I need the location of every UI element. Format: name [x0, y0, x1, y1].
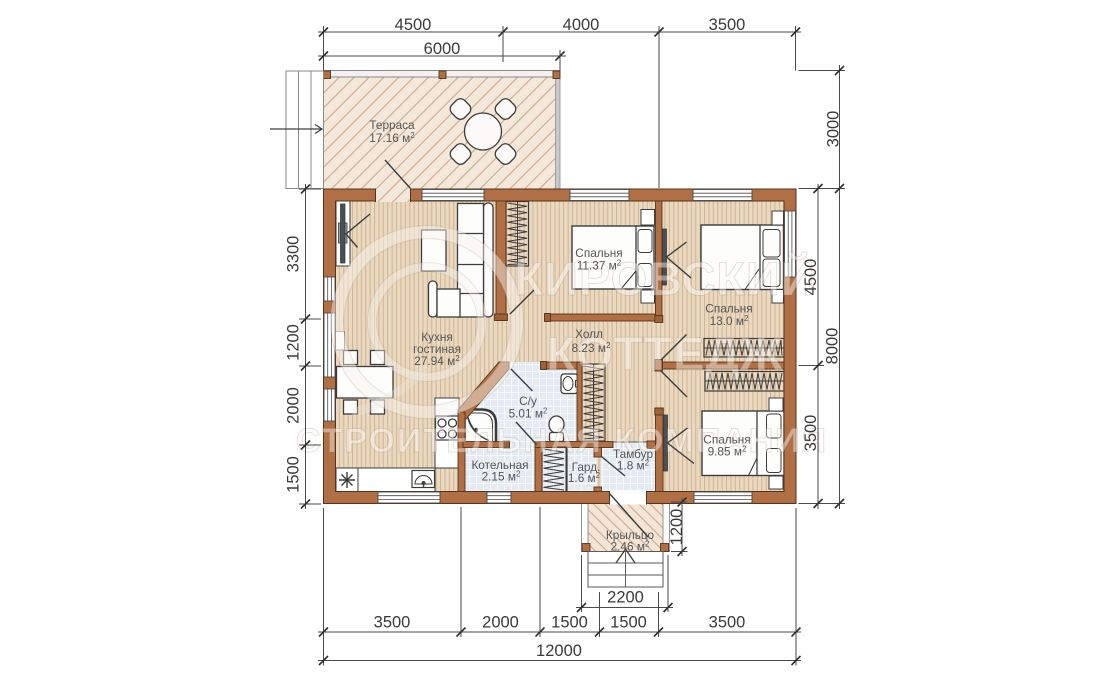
svg-text:11.37 м2: 11.37 м2 — [577, 259, 622, 273]
svg-text:Холл: Холл — [575, 327, 603, 341]
svg-text:Терраса: Терраса — [369, 118, 415, 132]
svg-text:3500: 3500 — [709, 16, 746, 34]
svg-text:2.15 м2: 2.15 м2 — [482, 470, 521, 484]
svg-text:5.01 м2: 5.01 м2 — [509, 407, 548, 421]
svg-text:3500: 3500 — [709, 614, 746, 632]
svg-text:2200: 2200 — [607, 589, 644, 607]
svg-text:8000: 8000 — [824, 328, 842, 365]
svg-text:3300: 3300 — [285, 236, 303, 273]
svg-text:3000: 3000 — [825, 111, 843, 148]
svg-text:3500: 3500 — [802, 415, 820, 452]
svg-text:1500: 1500 — [610, 614, 647, 632]
svg-text:4000: 4000 — [563, 16, 600, 34]
svg-text:КИРОВСКИЙ: КИРОВСКИЙ — [514, 252, 815, 305]
svg-text:4500: 4500 — [802, 259, 820, 296]
svg-text:1200: 1200 — [285, 324, 303, 361]
svg-text:12000: 12000 — [536, 642, 582, 660]
svg-text:4500: 4500 — [395, 16, 432, 34]
svg-text:6000: 6000 — [424, 40, 461, 58]
svg-text:2.46 м2: 2.46 м2 — [611, 540, 650, 554]
svg-text:27.94 м2: 27.94 м2 — [414, 354, 460, 368]
svg-text:1500: 1500 — [551, 614, 588, 632]
svg-text:9.85 м2: 9.85 м2 — [708, 445, 747, 459]
svg-text:2000: 2000 — [482, 614, 519, 632]
svg-text:1500: 1500 — [285, 456, 303, 493]
svg-text:8.23 м2: 8.23 м2 — [572, 341, 611, 355]
svg-text:13.0 м2: 13.0 м2 — [710, 314, 749, 328]
svg-text:2000: 2000 — [285, 387, 303, 424]
svg-text:1200: 1200 — [668, 509, 686, 546]
svg-text:17.16 м2: 17.16 м2 — [369, 131, 415, 145]
svg-text:3500: 3500 — [374, 614, 411, 632]
